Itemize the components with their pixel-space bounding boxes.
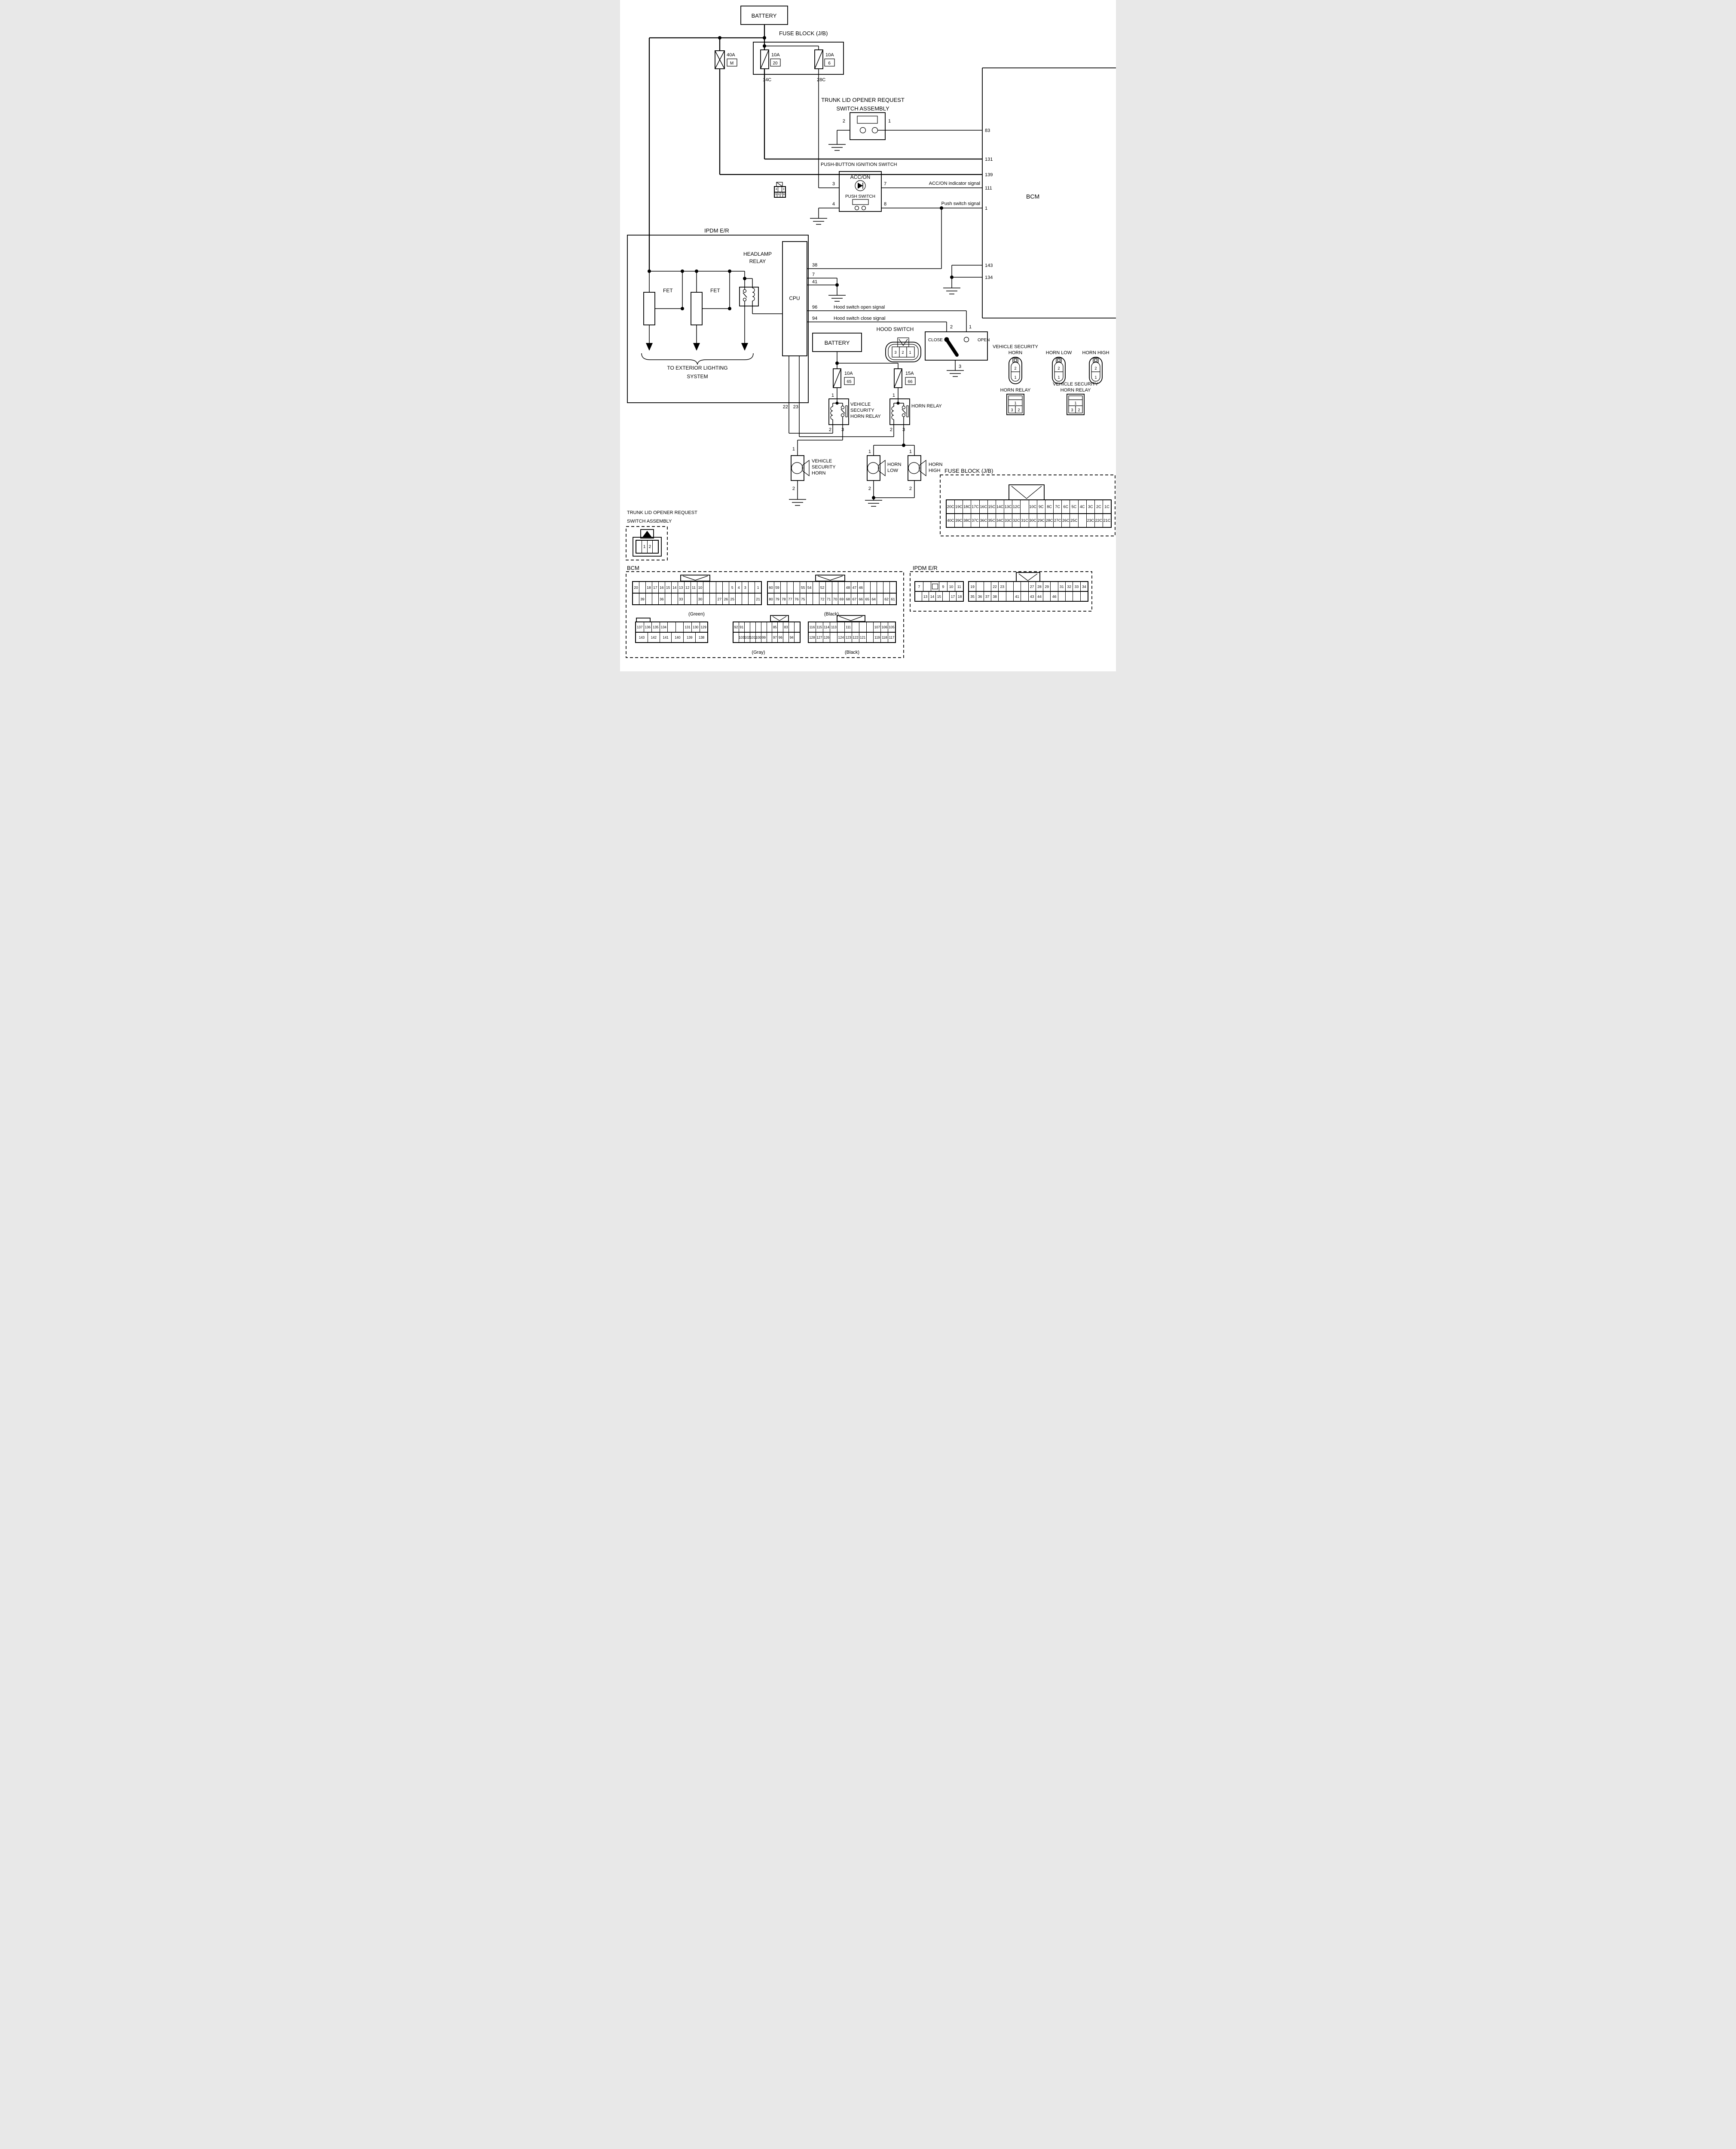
connector-pin-cell: 40C [947, 514, 954, 527]
connector-pin-cell [830, 633, 837, 642]
horn-low-pin1: 1 [868, 449, 871, 454]
connector-pin-cell: 6C [1061, 500, 1070, 513]
connector-pin-cell: 101 [750, 633, 755, 642]
connector-pin-cell: 129 [700, 622, 708, 632]
connector-pin-cell: 77 [787, 594, 793, 604]
connector-pin-cell: 66 [857, 594, 864, 604]
connector-pin-cell: 25C [1070, 514, 1078, 527]
connector-pin-cell [703, 594, 709, 604]
connector-pin-cell: 15 [935, 592, 942, 601]
connector-pin-cell: 121 [859, 633, 866, 642]
connector-row: 8079787776757271706968676665646261 [768, 593, 896, 604]
connector-pin-cell: 96 [777, 633, 783, 642]
connector-pin-cell: 47 [851, 582, 857, 593]
connector-pin-cell: 72 [819, 594, 825, 604]
connector-pin-cell [998, 592, 1006, 601]
connector-pin-cell [744, 622, 750, 632]
hood-conn-3: 3 [894, 350, 896, 355]
connector-pin-cell [825, 582, 832, 593]
trunk-view-title-2: SWITCH ASSEMBLY [627, 519, 672, 524]
connector-pin-cell: 68 [844, 594, 851, 604]
connector-pin-cell: 34C [996, 514, 1004, 527]
connector-pin-cell: 13 [678, 582, 684, 593]
battery-top-label: BATTERY [752, 12, 777, 19]
battery-top: BATTERY [741, 6, 788, 24]
connector-pin-cell: 26C [1061, 514, 1070, 527]
connector-pin-cell [866, 622, 874, 632]
connector-pin-cell [984, 582, 991, 591]
fusejb-connector-grid: 20C19C18C17C16C15C14C13C12C10C9C8C7C6C5C… [946, 499, 1112, 528]
hood-switch: HOOD SWITCH 2 1 CLOSE OPEN 3 3 2 1 [877, 324, 990, 377]
connector-pin-cell: 2C [1094, 500, 1103, 513]
bcm-white-connector-grid: 137136135134131130129143142141140139138 [635, 621, 708, 643]
connector-pin-cell: 16C [979, 500, 987, 513]
horn-high-pin2: 2 [909, 486, 912, 491]
connector-pin-cell: 10C [1029, 500, 1037, 513]
connector-pin-cell: 15C [987, 500, 996, 513]
connector-pin-cell [870, 582, 877, 593]
trunk-ground-icon [828, 144, 846, 150]
connector-pin-cell: 4 [735, 582, 742, 593]
horn-relay-pin2: 2 [890, 427, 892, 432]
connector-pin-cell [923, 582, 931, 591]
connector-pin-cell: 8C [1045, 500, 1053, 513]
connector-pin-cell [780, 582, 787, 593]
connector-pin-cell: 139 [683, 633, 695, 642]
connector-pin-cell: 7 [915, 582, 923, 591]
connector-pin-cell [691, 594, 697, 604]
hood-close-label: CLOSE [928, 338, 943, 343]
connector-pin-cell [722, 582, 729, 593]
connector-row: 5678 [775, 192, 785, 197]
bcm-gray-connector-grid: 9291858310310210110099979694 [733, 621, 801, 643]
trunk-view-title-1: TRUNK LID OPENER REQUEST [627, 510, 697, 515]
connector-pin-cell [703, 582, 709, 593]
connector-pin-cell: 69 [838, 594, 844, 604]
connector-row: 791011 [915, 582, 963, 591]
bcm-view-title: BCM [627, 565, 639, 571]
connector-pin-cell [877, 582, 883, 593]
connector-pin-cell: 17 [949, 592, 956, 601]
connector-pin-cell: 136 [644, 622, 652, 632]
trunk-lid-switch: TRUNK LID OPENER REQUEST SWITCH ASSEMBLY… [821, 97, 982, 150]
horn-low-l2: LOW [887, 468, 899, 473]
connector-row: 43 [775, 187, 785, 192]
hood-pin2: 2 [950, 324, 953, 330]
connector-row: 1314151718 [915, 591, 963, 601]
connector-pin-cell: 119 [873, 633, 880, 642]
fuse-65-id: 65 [847, 380, 852, 384]
relay-conn-pin2: 2 [1018, 408, 1020, 412]
connector-pin-cell: 59 [774, 582, 780, 593]
connector-pin-cell [709, 594, 716, 604]
connector-pin-cell: 27 [1028, 582, 1036, 591]
connector-pin-cell [665, 594, 671, 604]
connector-pin-cell [915, 592, 922, 601]
fuse-40a-label: 40A [727, 52, 735, 58]
ipdm-small-connector-grid: 7910111314151718 [914, 581, 964, 602]
bcm-feed-wires [720, 69, 982, 188]
fuse-40a-id: M [730, 61, 734, 66]
connector-pin-cell: 1 [642, 541, 647, 553]
connector-pin-cell [1080, 592, 1088, 601]
connector-pin-cell: 44 [1036, 592, 1043, 601]
connector-pin-cell [864, 582, 870, 593]
relay1-pin1: 1 [831, 393, 834, 398]
sig-hood-open: Hood switch open signal [834, 305, 885, 310]
horn-low-l1: HORN [887, 462, 901, 467]
connector-pin-cell: 97 [772, 633, 777, 642]
horn-feed-wires: 1 1 1 [792, 426, 914, 456]
ipdm-view-title: IPDM E/R [913, 565, 938, 571]
connector-pin-cell [778, 187, 781, 192]
gray-caption: (Gray) [752, 650, 765, 655]
connector-pin-cell [652, 541, 658, 553]
connector-pin-cell: 107 [873, 622, 880, 632]
capsule-connectors: 2 1 2 1 2 1 [1009, 357, 1102, 384]
connector-pin-cell [1043, 592, 1050, 601]
connector-pin-cell: 78 [780, 594, 787, 604]
connector-pin-cell: 75 [800, 594, 806, 604]
connector-pin-cell: 36 [976, 592, 983, 601]
connector-pin-cell: 130 [691, 622, 700, 632]
connector-pin-cell [806, 594, 813, 604]
connector-pin-cell: 138 [695, 633, 707, 642]
vsh-horn-l3: HORN [812, 471, 825, 476]
connector-pin-cell: 137 [636, 622, 644, 632]
vsh-relay-l3: HORN RELAY [850, 414, 881, 419]
connector-pin-cell: 43 [1028, 592, 1036, 601]
connector-pin-cell [1021, 592, 1028, 601]
out-28c-label: 28C [817, 77, 825, 83]
connector-row: 10310210110099979694 [734, 632, 800, 642]
bcm-black2-connector-grid: 1161151141131111071061051281271261241231… [808, 621, 896, 643]
connector-pin-cell: 36C [979, 514, 987, 527]
connector-pin-cell: 106 [880, 622, 888, 632]
connector-pin-cell [675, 622, 684, 632]
connector-pin-cell [1020, 500, 1028, 513]
ipdm-label: IPDM E/R [704, 227, 729, 234]
horn-low-pin2: 2 [868, 486, 871, 491]
horn-relay: HORN RELAY 2 3 [890, 399, 942, 432]
push-ground-icon [810, 218, 827, 224]
connector-pin-cell: 18 [645, 582, 652, 593]
cpu-pin-wires: 38 7 41 96 Hood switch open signal 94 Ho… [783, 208, 966, 437]
horn-high-pin1: 1 [909, 449, 912, 454]
connector-pin-cell: 25 [729, 594, 735, 604]
connector-pin-cell: 26 [722, 594, 729, 604]
connector-pin-cell: 32C [1012, 514, 1020, 527]
connector-pin-cell: 16 [658, 582, 665, 593]
horn-high-view-label: HORN HIGH [1082, 350, 1109, 355]
vsh-horn-pin1: 1 [792, 447, 795, 452]
power-feed-wires [649, 24, 766, 271]
trunk-pin2: 2 [843, 119, 845, 124]
sig-push-label: Push switch signal [941, 201, 981, 206]
connector-pin-cell: 29 [1043, 582, 1050, 591]
connector-pin-cell: 10 [697, 582, 703, 593]
connector-pin-cell [716, 582, 722, 593]
connector-pin-cell [748, 582, 755, 593]
connector-pin-cell: 37 [984, 592, 991, 601]
connector-row: 201817161514131211105431 [633, 582, 761, 593]
connector-pin-cell [755, 622, 761, 632]
connector-pin-cell: 140 [671, 633, 683, 642]
connector-pin-cell [742, 594, 748, 604]
connector-pin-cell: 64 [870, 594, 877, 604]
hood-pin1: 1 [969, 324, 972, 330]
black-caption: (Black) [824, 612, 839, 617]
connector-pin-cell: 85 [772, 622, 777, 632]
connector-pin-cell: 13 [922, 592, 929, 601]
connector-row: 40C39C38C37C36C35C34C33C32C31C30C29C28C2… [947, 513, 1111, 527]
connector-pin-cell: 19 [969, 582, 976, 591]
keying-rect-icon [932, 584, 938, 590]
capsule-pin-2: 2 [1057, 366, 1060, 370]
horn-low: HORN LOW 2 [865, 456, 914, 506]
connector-pin-cell [877, 594, 883, 604]
connector-pin-cell [942, 592, 949, 601]
connector-pin-cell [883, 582, 889, 593]
relay-conn-pin3: 3 [1071, 408, 1073, 412]
connector-row: 12 [636, 541, 658, 553]
connector-pin-cell [633, 594, 639, 604]
headlamp-relay-l2: RELAY [749, 258, 766, 264]
horn-high: HORN HIGH 2 [908, 456, 942, 498]
vsh-relay-l1: VEHICLE [850, 402, 871, 407]
connector-row: 19222327282931323334 [969, 582, 1088, 591]
schematic-canvas: BATTERY FUSE BLOCK (J/B) 40A M 10A 20 [620, 0, 1116, 671]
fuse-66-id: 66 [908, 380, 913, 384]
connector-pin-cell: 23 [998, 582, 1006, 591]
connector-pin-cell: 33C [1004, 514, 1012, 527]
connector-pin-cell: 135 [651, 622, 660, 632]
connector-pin-cell: 124 [837, 633, 844, 642]
connector-pin-cell: 31 [1058, 582, 1065, 591]
cpu-pin-94: 94 [812, 316, 817, 321]
connector-pin-cell [859, 622, 866, 632]
connector-pin-cell: 61 [889, 594, 896, 604]
connector-pin-cell: 22C [1094, 514, 1103, 527]
bcm-pin-139: 139 [985, 172, 993, 178]
connector-pin-cell: 22 [991, 582, 998, 591]
fuse-20-id: 20 [773, 61, 778, 66]
connector-pin-cell: 117 [888, 633, 895, 642]
connector-pin-cell [838, 582, 844, 593]
connector-pin-cell: 18 [956, 592, 963, 601]
connector-pin-cell: 23C [1086, 514, 1094, 527]
connector-pin-cell [1065, 592, 1073, 601]
vsh-relay-l2: SECURITY [850, 408, 874, 413]
connector-pin-cell: 18C [963, 500, 971, 513]
connector-row: 92918583 [734, 622, 800, 632]
connector-pin-cell: 91 [739, 622, 744, 632]
connector-pin-cell: 141 [660, 633, 672, 642]
fusejb-view-title: FUSE BLOCK (J/B) [944, 468, 993, 474]
cpu-pin-38: 38 [812, 263, 817, 268]
connector-pin-cell: 4C [1078, 500, 1086, 513]
connector-pin-cell: 54 [806, 582, 813, 593]
connector-pin-cell: 67 [851, 594, 857, 604]
connector-pin-cell [1050, 582, 1057, 591]
connector-pin-cell: 7C [1053, 500, 1061, 513]
wiring-diagram-page: BATTERY FUSE BLOCK (J/B) 40A M 10A 20 [620, 0, 1116, 671]
vsh-horn-l1: VEHICLE [812, 459, 832, 464]
acc-on-label: ACC/ON [850, 174, 871, 180]
connector-pin-cell: 39 [639, 594, 645, 604]
hood-pin3: 3 [959, 364, 961, 369]
horn-relay-connector-icon: 1 3 2 [1007, 394, 1024, 415]
connector-pin-cell: 10 [947, 582, 955, 591]
connector-pin-cell [794, 622, 800, 632]
connector-pin-cell: 134 [660, 622, 668, 632]
connector-pin-cell: 9 [939, 582, 947, 591]
connector-pin-cell: 38 [991, 592, 998, 601]
trunk-connector-grid: 12 [636, 540, 659, 554]
hood-conn-2: 2 [902, 350, 904, 355]
connector-pin-cell: 65 [864, 594, 870, 604]
black2-caption: (Black) [845, 650, 859, 655]
push-pin3: 3 [832, 181, 835, 187]
connector-pin-cell: 114 [823, 622, 830, 632]
connector-pin-cell: 99 [761, 633, 767, 642]
horn-high-connector-icon: 2 1 [1089, 357, 1102, 384]
connector-pin-cell: 3 [782, 187, 785, 192]
fet2-label: FET [710, 288, 720, 294]
connector-row: 128127126124123122121119118117 [809, 632, 895, 642]
connector-pin-cell: 100 [755, 633, 761, 642]
connector-pin-cell: 21C [1103, 514, 1111, 527]
connector-row: 143142141140139138 [636, 632, 707, 642]
connector-pin-cell: 20 [633, 582, 639, 593]
connector-pin-cell: 116 [809, 622, 816, 632]
connector-pin-cell: 70 [832, 594, 838, 604]
ext-lighting-l1: TO EXTERIOR LIGHTING [667, 365, 727, 371]
connector-pin-cell [866, 633, 874, 642]
cpu-pin-7: 7 [812, 272, 815, 277]
connector-pin-cell: 131 [683, 622, 691, 632]
fuse-66-amp: 15A [905, 371, 914, 376]
hood-ground-icon [947, 370, 964, 377]
push-button-ignition-switch: PUSH-BUTTON IGNITION SWITCH ACC/ON PUSH … [776, 162, 982, 224]
connector-row: 6059555452484746 [768, 582, 896, 593]
connector-pin-cell: 46 [1050, 592, 1057, 601]
connector-pin-cell: 17 [652, 582, 658, 593]
sig-hood-close: Hood switch close signal [834, 316, 885, 321]
connector-pin-cell: 94 [789, 633, 794, 642]
headlamp-relay-l1: HEADLAMP [743, 251, 772, 257]
connector-pin-cell: 34 [1080, 582, 1088, 591]
horn-connector-views: VEHICLE SECURITY HORN HORN LOW HORN HIGH [993, 344, 1109, 355]
sig-accon-label: ACC/ON indicator signal [929, 181, 980, 186]
connector-pin-cell: 79 [774, 594, 780, 604]
connector-pin-cell [639, 582, 645, 593]
connector-pin-cell: 14C [996, 500, 1004, 513]
connector-pin-cell: 41 [1013, 592, 1021, 601]
connector-row: 3936333027262521 [633, 593, 761, 604]
bcm-ground-wires [943, 265, 982, 294]
connector-pin-cell [671, 594, 678, 604]
horn-low-connector-icon: 2 1 [1052, 357, 1065, 384]
connector-row: 137136135134131130129 [636, 622, 707, 632]
vsh-horn-pin2: 2 [792, 486, 795, 491]
bcm-green-connector-grid: 2018171615141312111054313936333027262521 [632, 581, 762, 605]
connector-pin-cell: 4 [775, 187, 778, 192]
connector-pin-cell [889, 582, 896, 593]
connector-pin-cell: 118 [880, 633, 888, 642]
connector-pin-cell: 76 [793, 594, 800, 604]
connector-pin-cell [734, 633, 739, 642]
capsule-pin-2: 2 [1014, 366, 1016, 370]
bcm-pin-131: 131 [985, 157, 993, 162]
connector-pin-cell: 80 [768, 594, 774, 604]
bcm-pin-143: 143 [985, 263, 993, 268]
vsh-relay-view-l1: VEHICLE SECURITY [1053, 382, 1098, 387]
bcm-pin-111: 111 [985, 186, 992, 191]
ipdm-box: IPDM E/R FET FET HEADLAMP RELAY [627, 227, 808, 403]
connector-pin-cell: 21 [755, 594, 761, 604]
ipdm-large-connector-grid: 192223272829313233343536373841434446 [968, 581, 1088, 602]
connector-pin-cell: 1C [1103, 500, 1111, 513]
bcm-black-connector-grid: 6059555452484746807978777675727170696867… [767, 581, 897, 605]
green-caption: (Green) [688, 612, 705, 617]
push-pin7: 7 [884, 181, 886, 187]
connector-pin-cell: 55 [800, 582, 806, 593]
cpu-pin-96: 96 [812, 305, 817, 310]
relay-conn-pin1: 1 [1074, 401, 1076, 405]
connector-pin-cell: 92 [734, 622, 739, 632]
push-pin8: 8 [884, 202, 886, 207]
capsule-pin-1: 1 [1014, 375, 1016, 380]
connector-pin-cell [735, 594, 742, 604]
connector-pin-cell: 13C [1004, 500, 1012, 513]
fuse-10a-6-icon [815, 50, 823, 69]
connector-pin-cell: 105 [888, 622, 895, 632]
push-title: PUSH-BUTTON IGNITION SWITCH [821, 162, 897, 167]
connector-pin-cell [813, 582, 819, 593]
connector-pin-cell: 52 [819, 582, 825, 593]
connector-pin-cell: 14 [929, 592, 935, 601]
vsh-horn-view-l2: HORN [1009, 350, 1022, 355]
hood-connector-icon: 3 2 1 [886, 338, 921, 362]
push-switch-connector-grid: 435678 [774, 186, 786, 198]
capsule-pin-1: 1 [1094, 375, 1097, 380]
connector-pin-cell [794, 633, 800, 642]
fuse-65-amp: 10A [844, 371, 853, 376]
connector-pin-cell: 28C [1045, 514, 1053, 527]
relay2-pin1: 1 [892, 393, 895, 398]
connector-pin-cell [636, 541, 642, 553]
connector-pin-cell [1021, 582, 1028, 591]
connector-pin-cell [789, 622, 794, 632]
connector-pin-cell: 3 [742, 582, 748, 593]
fet1-label: FET [663, 288, 673, 294]
connector-pin-cell: 14 [671, 582, 678, 593]
bcm-pin-1: 1 [985, 206, 987, 211]
vsh-relay-view-l2: HORN RELAY [1061, 388, 1091, 393]
ipdm-pin-23: 23 [793, 404, 798, 410]
connector-pin-cell: 46 [857, 582, 864, 593]
connector-pin-cell: 27C [1053, 514, 1061, 527]
vsh-relay: VEHICLE SECURITY HORN RELAY 2 3 [829, 399, 881, 432]
connector-pin-cell: 62 [883, 594, 889, 604]
bcm-pin-134: 134 [985, 275, 993, 280]
fuse-6-id: 6 [828, 61, 831, 66]
vsh-horn-l2: SECURITY [812, 465, 836, 470]
connector-pin-cell: 38C [963, 514, 971, 527]
connector-pin-cell: 1 [755, 582, 761, 593]
vsh-relay-connector-icon: 1 3 2 [1067, 394, 1084, 415]
